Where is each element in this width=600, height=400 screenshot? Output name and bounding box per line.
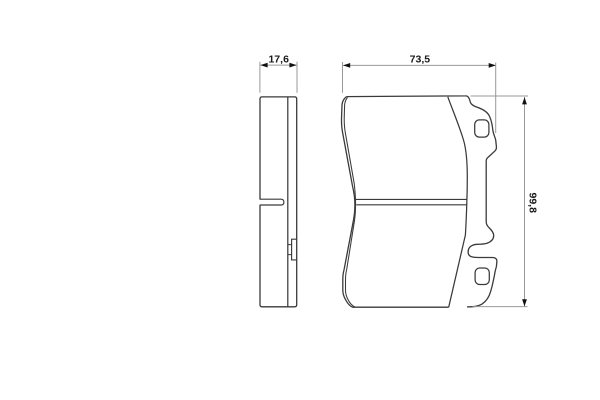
svg-text:17,6: 17,6 [268,53,289,65]
svg-text:73,5: 73,5 [410,54,431,66]
svg-text:99,8: 99,8 [527,192,539,213]
